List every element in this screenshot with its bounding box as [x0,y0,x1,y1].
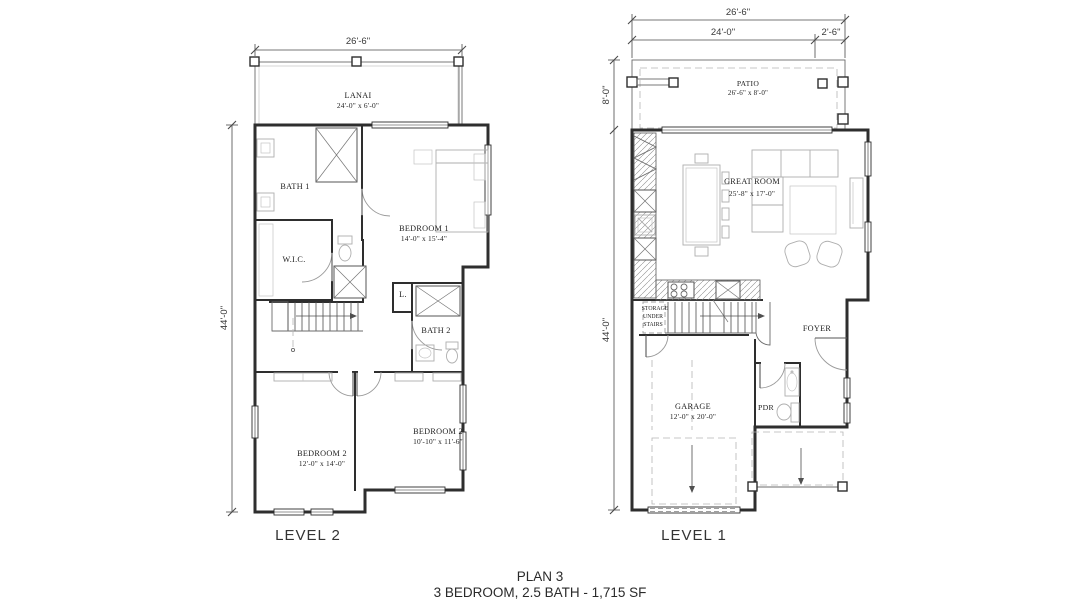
sink-symbol [785,368,799,396]
toilet-symbol [777,403,799,422]
level2-width-text: 26'-6" [346,36,370,47]
bedroom2-left-size: 12'-0" x 14'-0" [299,459,345,468]
garage-size: 12'-0" x 20'-0" [670,412,716,421]
garage-label: GARAGE [675,402,711,411]
sheet-title: PLAN 3 3 BEDROOM, 2.5 BATH - 1,715 SF [434,569,647,600]
bedroom1-size: 14'-0" x 15'-4" [401,234,447,243]
wic-label: W.I.C. [282,255,305,264]
patio-depth-text: 8'-0" [601,86,612,105]
island-symbol [683,154,729,256]
bath2-label: BATH 2 [421,326,450,335]
bedroom1-label: BEDROOM 1 [399,224,449,233]
level1-stairs [665,300,770,345]
front-door-arc [815,338,847,370]
toilet-symbol [446,342,458,363]
sink-symbol [257,193,274,211]
level1-exterior-walls [632,130,868,510]
media-console-symbol [850,178,863,228]
level2-width-dimension: 26'-6" [251,36,466,56]
level1-doors [646,335,847,388]
foyer-label: FOYER [803,324,832,333]
level1-width-main-text: 24'-0" [711,27,735,38]
level1-width-total-text: 26'-6" [726,7,750,18]
lanai-post [250,57,259,66]
bedroom2-right-label: BEDROOM 2 [413,427,463,436]
storage-label-3: STAIRS [643,322,663,328]
sink-symbol [257,139,274,157]
patio-size: 26'-6" x 8'-0" [728,89,768,97]
patio-post [838,77,848,87]
floor-plan-sheet: 26'-6" 44'-0" [0,0,1080,608]
level2-plan: 26'-6" 44'-0" [219,36,491,544]
chair-symbol [783,239,812,269]
bath1-label: BATH 1 [280,182,309,191]
pdr-fixtures [777,368,799,422]
porch-post [748,482,757,491]
level2-height-dimension: 44'-0" [219,121,238,516]
level1-height-dimensions: 8'-0" 44'-0" [601,56,620,514]
entry-porch [748,432,847,491]
level1-plan: 26'-6" 24'-0" 2'-6" 8'-0" 44'-0" [601,7,871,544]
storage-label-2: UNDER [643,314,663,320]
bath2-fixtures [416,286,460,363]
porch-post [838,482,847,491]
bedroom2-right-size: 10'-10" x 11'-6" [413,437,463,446]
patio-label: PATIO [737,79,760,88]
lanai-post [454,57,463,66]
patio-post [838,114,848,124]
chair-symbol [815,239,844,269]
bedroom2-left-label: BEDROOM 2 [297,449,347,458]
plan-summary: 3 BEDROOM, 2.5 BATH - 1,715 SF [434,585,647,600]
kitchen-sink-symbol [635,215,655,235]
level2-height-text: 44'-0" [219,306,230,330]
bath1-fixtures [257,128,357,261]
great-room-size: 25'-8" x 17'-0" [729,189,775,198]
level1-height-text: 44'-0" [601,318,612,342]
lanai-label: LANAI [345,91,372,100]
level2-stairs [272,302,363,352]
patio-post [627,77,637,87]
toilet-symbol [338,236,352,261]
lanai-post [352,57,361,66]
level1-width-dimensions: 26'-6" 24'-0" 2'-6" [628,7,849,58]
great-room-label: GREAT ROOM [724,177,780,186]
pdr-label: PDR [758,403,775,412]
level2-caption: LEVEL 2 [275,527,341,544]
cooktop-symbol [668,282,694,298]
linen-label: L. [399,290,407,299]
kitchen-symbols [634,133,760,300]
bed-symbol [414,150,488,232]
plan-name: PLAN 3 [517,569,564,584]
lanai-size: 24'-0" x 6'-0" [337,101,379,110]
rug-symbol [790,186,836,234]
patio-post [669,78,678,87]
garage-symbols [652,360,736,504]
patio-post [818,79,827,88]
great-room-furniture [752,150,863,269]
chase-symbol [334,266,366,298]
level1-caption: LEVEL 1 [661,527,727,544]
level1-width-side-text: 2'-6" [822,27,841,38]
floor-plan-drawing: 26'-6" 44'-0" [0,0,1080,608]
storage-label-1: STORAGE [642,306,669,312]
